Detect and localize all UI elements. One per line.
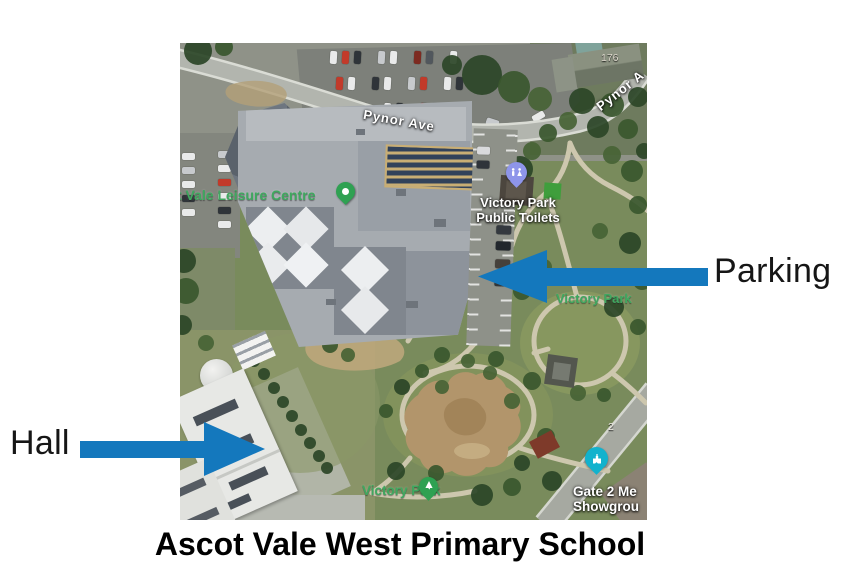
annotated-map-figure: Pynor Ave Pynor A 176 2 t Vale Leisure C…	[0, 0, 844, 584]
roof-vent	[356, 129, 365, 135]
tree	[514, 455, 530, 471]
roof-solar-strip	[180, 507, 220, 520]
hall-callout-label: Hall	[10, 424, 70, 463]
tree	[295, 424, 307, 436]
car	[496, 241, 511, 251]
tree	[387, 462, 405, 480]
tree	[523, 142, 541, 160]
tree	[462, 55, 502, 95]
tree	[523, 372, 541, 390]
playground-sand	[454, 443, 490, 459]
tree	[603, 146, 621, 164]
tree	[258, 368, 270, 380]
hall-arrow-shaft	[80, 441, 205, 458]
toilets-label-line1: Victory Park	[466, 196, 570, 211]
solar-panel-roof	[384, 144, 478, 190]
roof-solar-strip	[180, 478, 207, 502]
tree	[539, 124, 557, 142]
tree	[483, 366, 497, 380]
tree	[268, 382, 280, 394]
tree	[619, 232, 641, 254]
park-gazebo	[544, 354, 578, 388]
tree	[636, 143, 647, 159]
tree	[435, 380, 449, 394]
tree	[592, 223, 608, 239]
toilets-label-line2: Public Toilets	[466, 211, 570, 226]
tree	[304, 437, 316, 449]
tree	[498, 71, 530, 103]
tree	[488, 351, 504, 367]
tree	[587, 116, 609, 138]
tree	[313, 450, 325, 462]
roof-vent	[396, 189, 406, 196]
public-toilets-pin	[506, 162, 527, 186]
figure-caption: Ascot Vale West Primary School	[0, 526, 800, 563]
tree	[618, 119, 638, 139]
showgrounds-gate-pin	[585, 447, 608, 473]
tree	[629, 196, 647, 214]
gate-label-line1: Gate 2 Me	[573, 484, 639, 499]
tree	[503, 478, 521, 496]
tree	[630, 319, 646, 335]
poi-label-leisure-centre: t Vale Leisure Centre	[180, 187, 316, 203]
tree	[434, 347, 450, 363]
roof-solar-strip	[193, 399, 239, 427]
tree	[180, 278, 199, 304]
tree	[621, 160, 643, 182]
poi-label-victory-park-upper: Victory Park	[556, 291, 632, 306]
poi-label-public-toilets: Victory Park Public Toilets	[466, 196, 570, 225]
tree	[215, 43, 233, 56]
tree	[528, 87, 552, 111]
gate-label-line2: Showgrou	[573, 499, 639, 514]
victory-park-pin	[419, 477, 438, 499]
tree	[569, 88, 595, 114]
parking-callout-label: Parking	[714, 252, 831, 291]
parking-arrow-shaft	[546, 268, 708, 286]
tree	[321, 462, 333, 474]
car	[496, 225, 511, 235]
tree	[471, 484, 493, 506]
tree	[597, 388, 611, 402]
house-number-176: 176	[601, 52, 619, 64]
tree	[180, 249, 196, 273]
tree	[379, 404, 393, 418]
tree	[286, 410, 298, 422]
car	[476, 160, 489, 168]
tree	[542, 471, 562, 491]
poi-label-showgrounds-gate: Gate 2 Me Showgrou	[573, 484, 639, 514]
tree	[442, 55, 462, 75]
roof-vent	[434, 219, 446, 227]
tree	[394, 379, 410, 395]
tree	[341, 348, 355, 362]
car	[477, 146, 490, 154]
tree	[461, 354, 475, 368]
tree	[415, 364, 429, 378]
tree	[180, 315, 192, 335]
tree	[559, 112, 577, 130]
tree	[198, 335, 214, 351]
tree	[504, 393, 520, 409]
tree	[277, 396, 289, 408]
house-number-2: 2	[608, 421, 614, 433]
gazebo-roof	[552, 362, 571, 381]
roof-vent	[406, 301, 418, 308]
roof-vent	[326, 299, 336, 305]
